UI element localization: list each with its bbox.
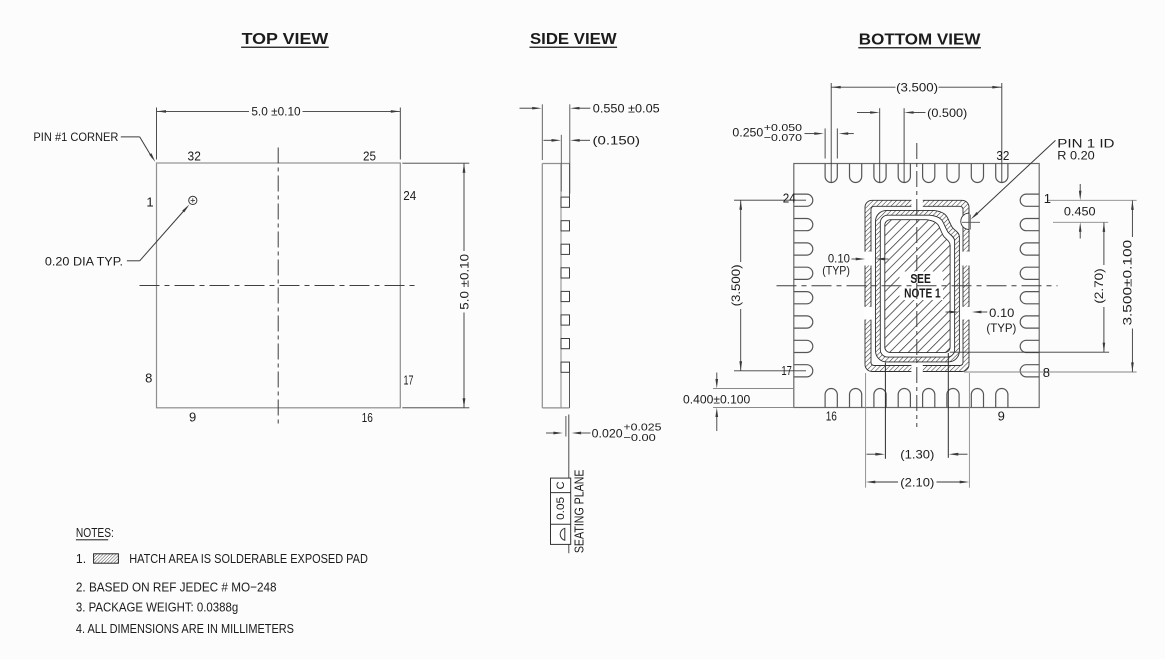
svg-text:0.400±0.100: 0.400±0.100 [683, 392, 751, 406]
svg-text:0.550 ±0.05: 0.550 ±0.05 [593, 102, 660, 116]
svg-text:HATCH AREA IS SOLDERABLE EXPOS: HATCH AREA IS SOLDERABLE EXPOSED PAD [129, 551, 368, 566]
svg-text:4. ALL DIMENSIONS ARE IN MILL: 4. ALL DIMENSIONS ARE IN MILLIMETERS [76, 621, 294, 636]
svg-text:1.: 1. [76, 551, 86, 566]
svg-text:17: 17 [404, 373, 414, 388]
svg-text:9: 9 [189, 410, 196, 425]
svg-text:−0.070: −0.070 [764, 132, 802, 144]
svg-text:8: 8 [145, 370, 152, 385]
svg-text:0.10: 0.10 [989, 306, 1015, 320]
svg-text:(0.150): (0.150) [593, 134, 641, 148]
svg-text:9: 9 [998, 409, 1005, 424]
svg-text:(2.70): (2.70) [1092, 268, 1106, 303]
svg-text:16: 16 [362, 410, 373, 425]
svg-text:−0.00: −0.00 [623, 432, 656, 444]
svg-text:TOP VIEW: TOP VIEW [242, 31, 330, 48]
svg-text:R 0.20: R 0.20 [1057, 149, 1095, 163]
svg-text:SEE: SEE [910, 272, 931, 286]
svg-text:1: 1 [1044, 191, 1051, 206]
svg-text:0.05: 0.05 [555, 497, 567, 520]
svg-text:3. PACKAGE WEIGHT: 0.0388g: 3. PACKAGE WEIGHT: 0.0388g [76, 599, 238, 614]
svg-text:0.20 DIA TYP.: 0.20 DIA TYP. [45, 254, 123, 268]
svg-text:(1.30): (1.30) [900, 448, 934, 462]
svg-text:(3.500): (3.500) [729, 264, 743, 306]
svg-text:NOTE 1: NOTE 1 [904, 286, 941, 300]
svg-text:C: C [555, 481, 567, 489]
svg-text:1: 1 [146, 194, 153, 209]
svg-text:(0.500): (0.500) [927, 106, 967, 120]
svg-text:SEATING PLANE: SEATING PLANE [572, 469, 586, 553]
svg-text:17: 17 [781, 363, 792, 378]
svg-text:5.0 ±0.10: 5.0 ±0.10 [457, 254, 471, 310]
svg-text:0.020: 0.020 [592, 426, 623, 440]
svg-text:24: 24 [783, 190, 796, 205]
svg-text:16: 16 [826, 409, 837, 424]
svg-text:24: 24 [403, 188, 416, 203]
svg-text:PIN #1 CORNER: PIN #1 CORNER [33, 130, 118, 144]
svg-text:SIDE VIEW: SIDE VIEW [530, 31, 618, 48]
svg-text:2. BASED ON REF JEDEC # MO−24: 2. BASED ON REF JEDEC # MO−248 [76, 580, 277, 595]
svg-text:(2.10): (2.10) [900, 475, 934, 489]
svg-text:8: 8 [1043, 365, 1050, 380]
svg-text:0.450: 0.450 [1064, 204, 1096, 218]
svg-text:25: 25 [363, 148, 376, 163]
svg-text:(TYP): (TYP) [822, 264, 850, 278]
svg-text:3.500±0.100: 3.500±0.100 [1121, 239, 1135, 325]
svg-text:32: 32 [996, 148, 1009, 163]
svg-text:5.0 ±0.10: 5.0 ±0.10 [251, 105, 301, 119]
svg-text:NOTES:: NOTES: [76, 525, 114, 540]
svg-text:0.250: 0.250 [732, 125, 763, 139]
svg-text:32: 32 [188, 148, 201, 163]
svg-text:(TYP): (TYP) [986, 321, 1016, 335]
svg-text:BOTTOM VIEW: BOTTOM VIEW [859, 32, 982, 49]
svg-text:(3.500): (3.500) [896, 81, 938, 95]
